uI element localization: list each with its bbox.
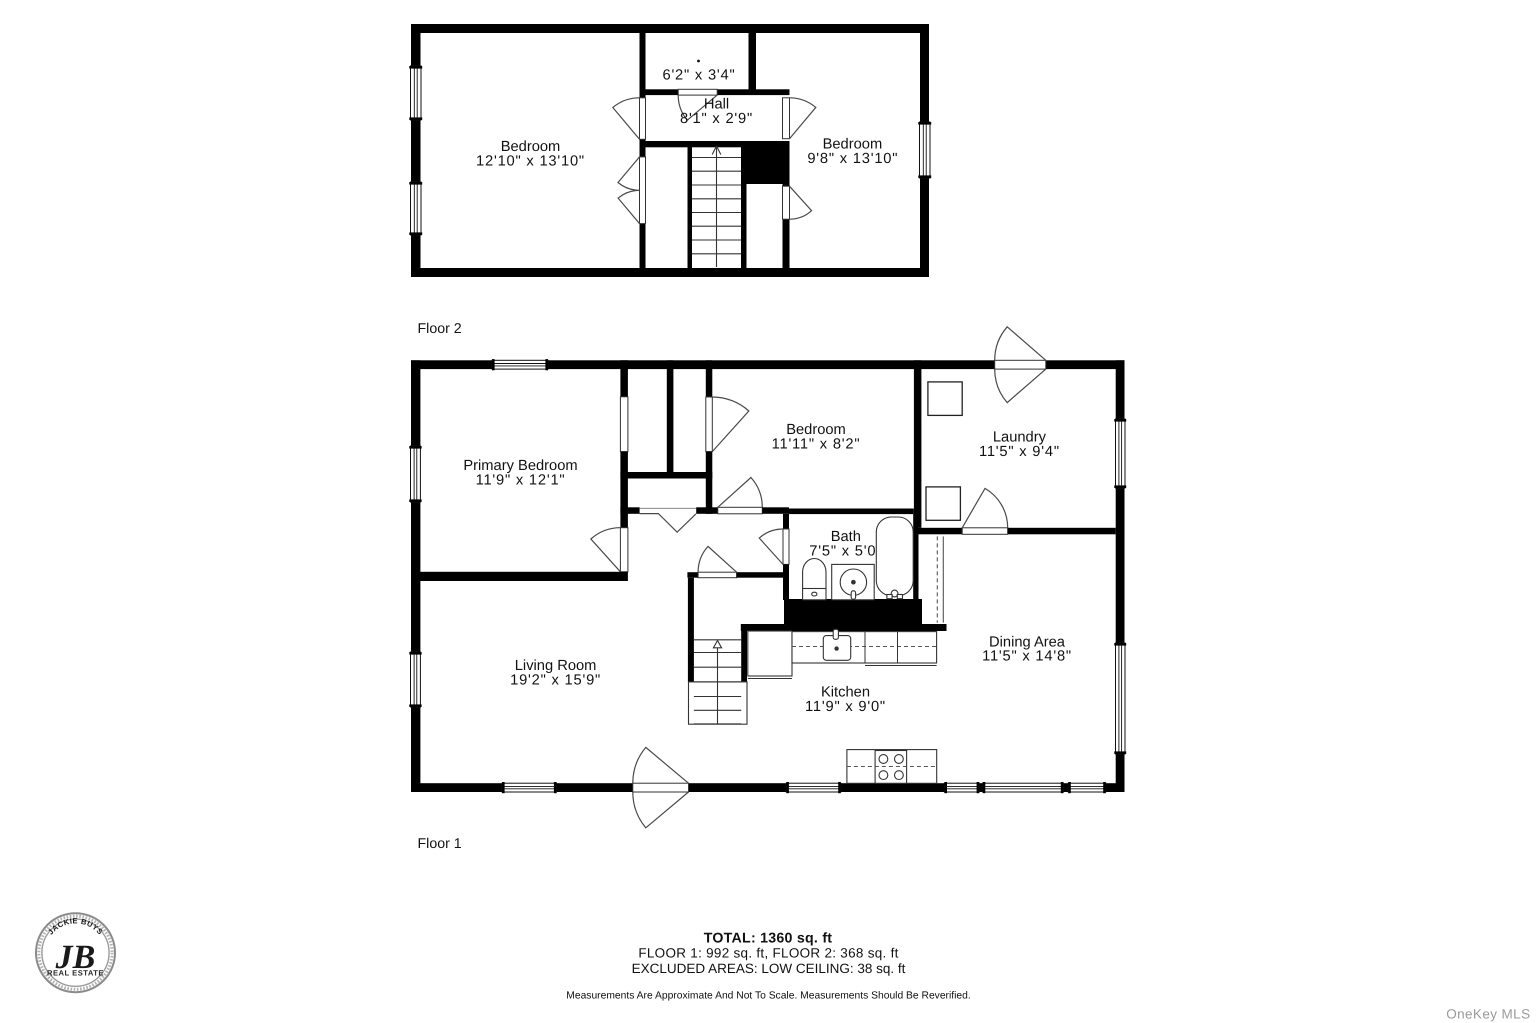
- svg-text:11'5" x 14'8": 11'5" x 14'8": [982, 649, 1072, 665]
- svg-text:11'9" x 12'1": 11'9" x 12'1": [476, 473, 566, 489]
- svg-text:FLOOR 1: 992 sq. ft, FLOOR 2:: FLOOR 1: 992 sq. ft, FLOOR 2: 368 sq. ft: [638, 946, 898, 961]
- svg-text:11'9" x 9'0": 11'9" x 9'0": [805, 699, 886, 715]
- svg-text:TOTAL: 1360 sq. ft: TOTAL: 1360 sq. ft: [704, 931, 833, 947]
- svg-text:JB: JB: [55, 939, 96, 976]
- svg-text:Floor 2: Floor 2: [418, 321, 462, 337]
- svg-text:19'2" x 15'9": 19'2" x 15'9": [510, 672, 601, 688]
- svg-text:Floor 1: Floor 1: [418, 836, 462, 852]
- svg-text:11'11" x 8'2": 11'11" x 8'2": [772, 436, 861, 452]
- svg-text:EXCLUDED AREAS: LOW CEILING: 3: EXCLUDED AREAS: LOW CEILING: 38 sq. ft: [632, 961, 906, 976]
- svg-text:OneKey MLS: OneKey MLS: [1446, 1007, 1530, 1022]
- svg-text:7'5" x 5'0": 7'5" x 5'0": [809, 544, 882, 560]
- svg-text:9'8" x 13'10": 9'8" x 13'10": [807, 151, 898, 167]
- svg-text:6'2" x 3'4": 6'2" x 3'4": [662, 68, 735, 84]
- svg-text:8'1" x 2'9": 8'1" x 2'9": [680, 111, 753, 127]
- svg-text:12'10" x 13'10": 12'10" x 13'10": [476, 154, 585, 170]
- svg-text:Measurements Are Approximate A: Measurements Are Approximate And Not To …: [566, 991, 970, 1002]
- svg-text:11'5" x 9'4": 11'5" x 9'4": [979, 444, 1060, 460]
